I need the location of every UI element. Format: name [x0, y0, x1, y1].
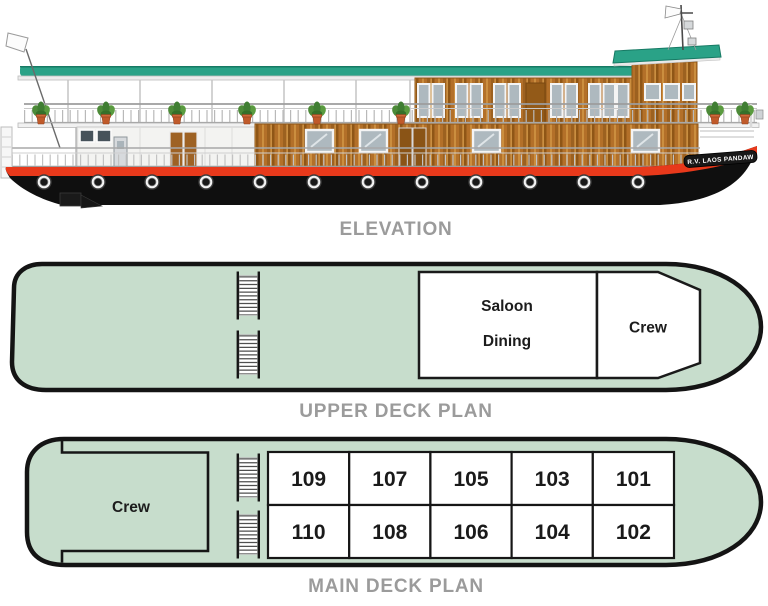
cabin-number: 103: [535, 468, 570, 491]
main-deck-wood-cabin: [255, 124, 698, 168]
mast-icon: [665, 5, 696, 50]
double-doors: [170, 132, 197, 168]
main-crew-label: Crew: [112, 499, 151, 516]
cabin-number: 110: [292, 521, 326, 544]
dining-label: Dining: [483, 333, 531, 350]
upper-crew-label: Crew: [629, 320, 668, 337]
staircase-icon: [238, 454, 259, 502]
crew-door: [114, 137, 127, 167]
staircase-icon: [238, 272, 259, 320]
cabin-number: 107: [372, 468, 407, 491]
stern-flag-icon: [665, 6, 681, 18]
bow-flag-icon: [6, 33, 60, 148]
cabin-number: 109: [291, 468, 326, 491]
upper-deck-label: UPPER DECK PLAN: [12, 401, 768, 423]
cabin-number: 104: [535, 521, 570, 544]
bow-thruster: [60, 193, 81, 206]
cabin-number: 106: [453, 521, 488, 544]
elevation-label: ELEVATION: [12, 219, 768, 241]
cabin-number: 105: [453, 468, 488, 491]
cabin-number: 102: [616, 521, 651, 544]
ship-elevation-drawing: R.V. LAOS PANDAW: [0, 0, 768, 248]
deck-plan-page: R.V. LAOS PANDAW ELEVATION Saloon Dining: [0, 0, 768, 606]
saloon-dining-room: [419, 272, 597, 378]
cabin-number: 108: [372, 521, 407, 544]
cabin-number: 101: [616, 468, 651, 491]
main-deck-label: MAIN DECK PLAN: [12, 576, 768, 598]
staircase-icon: [238, 331, 259, 379]
staircase-icon: [238, 511, 259, 559]
saloon-label: Saloon: [481, 298, 533, 315]
upper-deck-cabin: [415, 78, 632, 124]
upper-cabin-door: [526, 83, 545, 123]
